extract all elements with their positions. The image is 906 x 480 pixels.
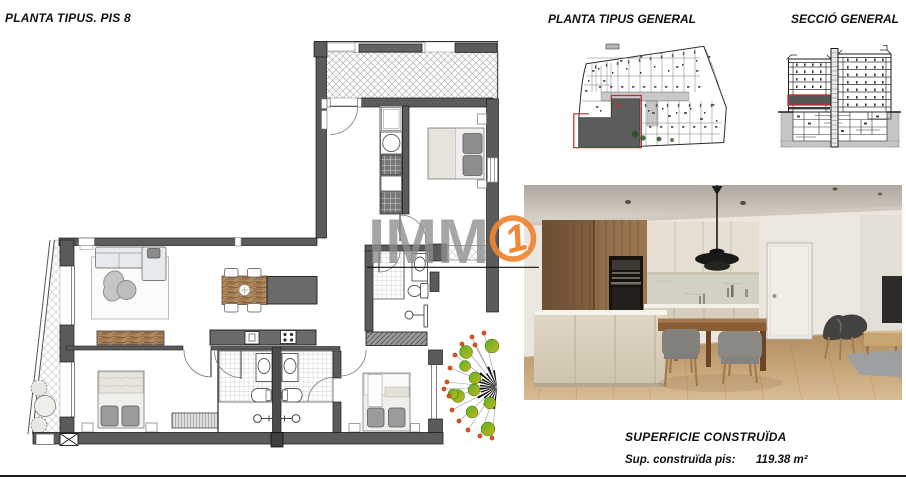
svg-text:8: 8: [617, 103, 621, 110]
svg-text:IMM: IMM: [368, 207, 489, 277]
